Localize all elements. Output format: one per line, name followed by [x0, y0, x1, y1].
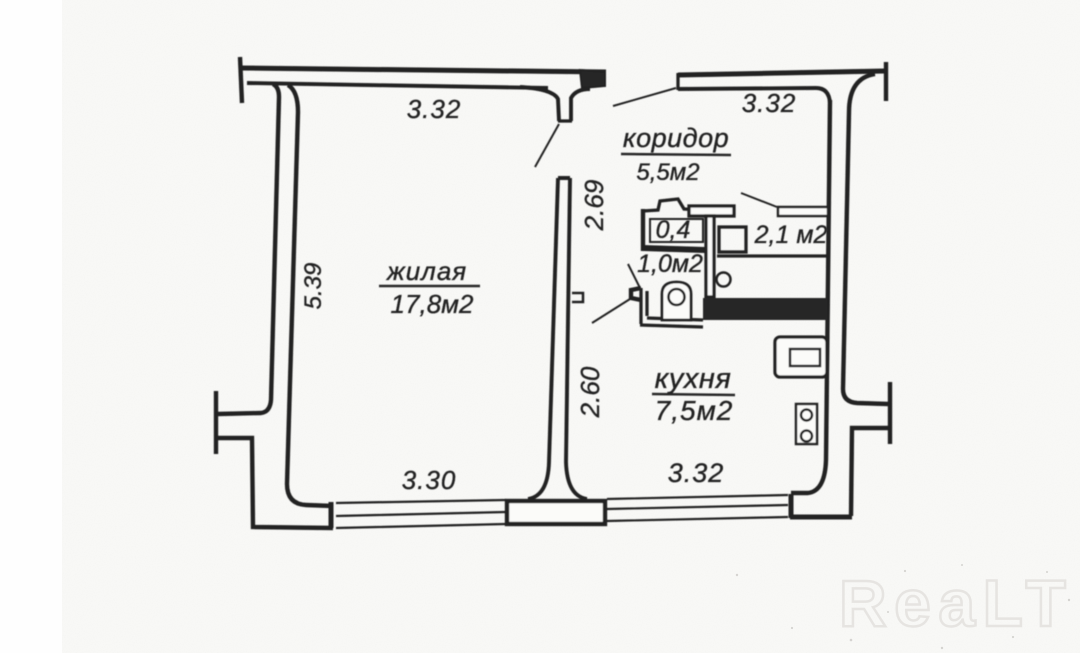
svg-text:5.39: 5.39 [300, 263, 327, 310]
svg-text:0,4: 0,4 [656, 216, 691, 244]
svg-text:3.32: 3.32 [742, 88, 797, 118]
svg-text:7,5м2: 7,5м2 [655, 395, 734, 426]
svg-text:3.30: 3.30 [402, 465, 457, 495]
svg-text:3.32: 3.32 [668, 458, 725, 488]
svg-text:коридор: коридор [623, 123, 729, 153]
svg-text:5,5м2: 5,5м2 [636, 159, 699, 186]
svg-text:ReaLT: ReaLT [839, 566, 1073, 640]
svg-text:17,8м2: 17,8м2 [391, 289, 474, 319]
svg-text:2,1 м2: 2,1 м2 [754, 221, 828, 249]
svg-text:2.60: 2.60 [575, 366, 605, 418]
svg-text:3.32: 3.32 [407, 94, 462, 124]
svg-text:кухня: кухня [655, 363, 732, 395]
svg-text:жилая: жилая [386, 256, 467, 286]
svg-text:1,0м2: 1,0м2 [637, 250, 703, 278]
svg-text:2.69: 2.69 [579, 180, 609, 232]
